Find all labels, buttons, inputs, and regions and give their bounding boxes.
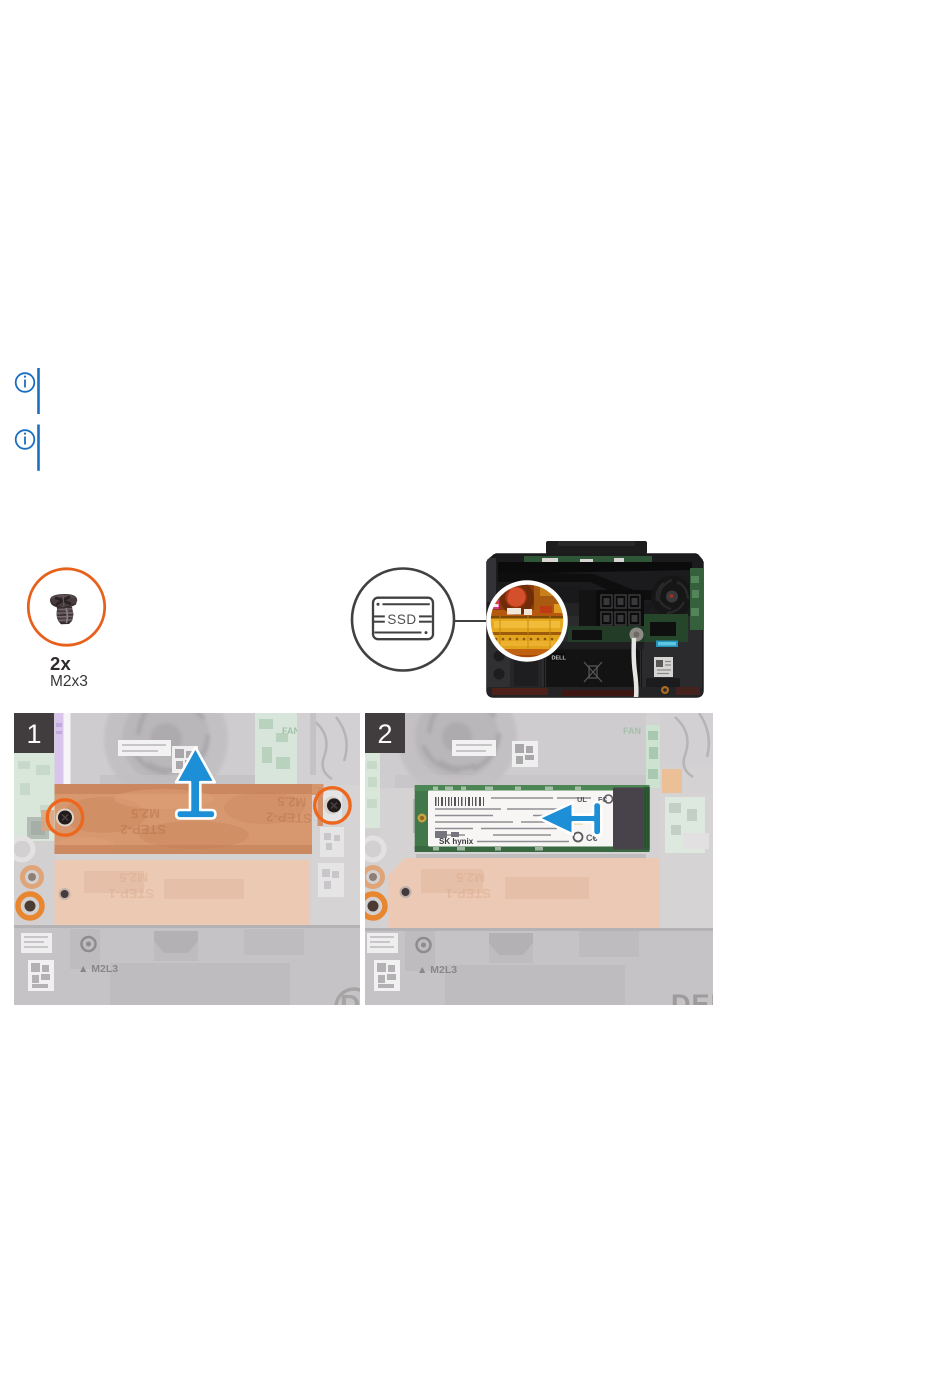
svg-text:UL: UL xyxy=(577,795,587,804)
svg-text:SK hynix: SK hynix xyxy=(439,837,474,846)
svg-text:M2.5: M2.5 xyxy=(119,870,148,885)
svg-text:M2.5: M2.5 xyxy=(456,870,485,885)
svg-text:M2.5: M2.5 xyxy=(131,806,160,821)
svg-text:STEP-2: STEP-2 xyxy=(266,809,312,826)
svg-text:DELL: DELL xyxy=(552,656,567,662)
svg-text:FAN: FAN xyxy=(623,726,641,736)
svg-text:2: 2 xyxy=(377,719,392,749)
svg-text:STEP-1: STEP-1 xyxy=(445,886,491,901)
svg-text:STEP-2: STEP-2 xyxy=(120,822,166,837)
svg-text:DEL: DEL xyxy=(671,989,713,1005)
svg-text:SSD: SSD xyxy=(387,612,416,627)
svg-text:▲ M2L3: ▲ M2L3 xyxy=(417,964,457,976)
svg-text:1: 1 xyxy=(26,719,41,749)
svg-text:STEP-1: STEP-1 xyxy=(108,886,154,901)
svg-text:M2.5: M2.5 xyxy=(277,794,306,810)
svg-text:▲ M2L3: ▲ M2L3 xyxy=(78,963,118,975)
